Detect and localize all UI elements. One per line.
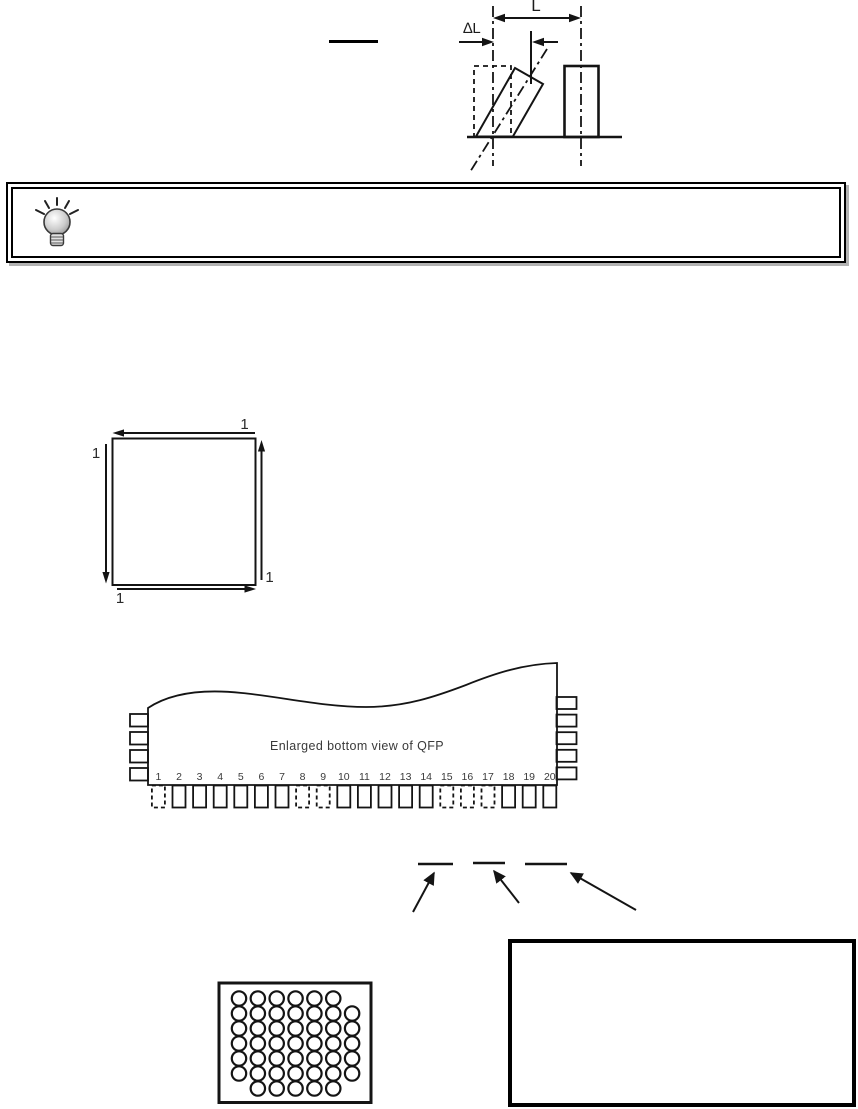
bga-ball (232, 1066, 246, 1080)
bga-ball (307, 1036, 321, 1050)
empty-note-box (508, 939, 856, 1107)
arrowhead-up-icon (258, 440, 265, 452)
lightbulb-icon (33, 195, 81, 255)
qfp-pin-number: 7 (279, 771, 285, 783)
qfp-left-pin (130, 714, 148, 727)
qfp-pin-number: 3 (197, 771, 203, 783)
dim-label-delta-L: ∆L (463, 20, 481, 37)
bga-ball (270, 1066, 284, 1080)
qfp-bottom-pin (440, 786, 453, 808)
bga-ball (307, 1051, 321, 1065)
bga-ball (326, 1051, 340, 1065)
qfp-right-pin (557, 750, 577, 762)
bga-ball (326, 991, 340, 1005)
qfp-pin-number: 6 (258, 771, 264, 783)
bga-ball (270, 1081, 284, 1095)
qfp-bottom-pin (214, 786, 227, 808)
qfp-bottom-pin (502, 786, 515, 808)
bga-ball (326, 1021, 340, 1035)
qfp-bottom-pin (276, 786, 289, 808)
bga-ball (251, 1051, 265, 1065)
arrowhead-right-icon (245, 585, 257, 592)
qfp-pin-number: 12 (379, 771, 391, 783)
corner-label-left: 1 (92, 445, 100, 462)
qfp-pin-number: 19 (523, 771, 535, 783)
bga-ball (232, 1036, 246, 1050)
bga-ball (251, 1036, 265, 1050)
tip-box (6, 182, 846, 263)
qfp-body (148, 663, 557, 785)
bga-ball (326, 1006, 340, 1020)
document-page: { "colors": { "ink": "#141414", "text": … (0, 0, 858, 1109)
bga-balls (232, 991, 359, 1095)
bga-ball (326, 1081, 340, 1095)
tilted-component (476, 68, 543, 137)
qfp-bottom-pins: 1234567891011121314151617181920 (152, 771, 556, 808)
bga-ball (345, 1036, 359, 1050)
bga-ball (288, 1006, 302, 1020)
tip-box-inner-border (11, 187, 841, 258)
qfp-right-pin (557, 767, 577, 779)
qfp-bottom-pin (523, 786, 536, 808)
qfp-right-pin (557, 715, 577, 727)
bga-ball (232, 1051, 246, 1065)
square-outline (113, 439, 256, 586)
bga-ball (345, 1051, 359, 1065)
qfp-bottom-pin (399, 786, 412, 808)
qfp-right-pin (557, 732, 577, 744)
qfp-bottom-pin (296, 786, 309, 808)
blank-word-underline (329, 40, 378, 43)
qfp-bottom-pin (152, 786, 165, 808)
arrowhead-left-icon (532, 38, 544, 46)
bga-ball (270, 1006, 284, 1020)
callout-arrow (413, 873, 434, 912)
bga-ball (270, 991, 284, 1005)
qfp-pin-number: 2 (176, 771, 182, 783)
qfp-pin-number: 13 (400, 771, 412, 783)
qfp-bottom-pin (358, 786, 371, 808)
qfp-pin-number: 18 (503, 771, 515, 783)
qfp-bottom-pin (461, 786, 474, 808)
qfp-bottom-pin (379, 786, 392, 808)
dim-label-L: L (531, 0, 540, 15)
qfp-bottom-pin (317, 786, 330, 808)
qfp-right-pin (557, 697, 577, 709)
qfp-pin-number: 20 (544, 771, 556, 783)
qfp-pin-number: 17 (482, 771, 494, 783)
bga-ball (251, 1006, 265, 1020)
qfp-pin-number: 15 (441, 771, 453, 783)
bga-ball (288, 1021, 302, 1035)
corner-label-top: 1 (240, 416, 248, 433)
bga-ball (307, 1021, 321, 1035)
qfp-bottom-pin (337, 786, 350, 808)
bga-ball (307, 1081, 321, 1095)
arrowhead-left-icon (113, 429, 125, 436)
bga-ball (251, 1081, 265, 1095)
qfp-pin-number: 4 (217, 771, 223, 783)
qfp-bottom-pin (543, 786, 556, 808)
qfp-pin-number: 10 (338, 771, 350, 783)
qfp-pin-number: 1 (155, 771, 161, 783)
arrowhead-left-icon (493, 14, 505, 22)
bga-ball (288, 1036, 302, 1050)
sequence-square-figure: 1 1 1 1 (80, 400, 280, 615)
qfp-pin-number: 16 (462, 771, 474, 783)
bga-ball (345, 1066, 359, 1080)
corner-label-bottom: 1 (116, 590, 124, 607)
qfp-bottom-pin (420, 786, 433, 808)
callout-arrow (571, 873, 636, 910)
qfp-bottom-pin (193, 786, 206, 808)
callout-figure (400, 838, 650, 923)
bga-ball (232, 1021, 246, 1035)
arrowhead-down-icon (102, 572, 109, 584)
bga-ball (251, 991, 265, 1005)
qfp-bottom-pin (173, 786, 186, 808)
bga-ball (251, 1021, 265, 1035)
qfp-left-pin (130, 732, 148, 745)
bga-ball (345, 1021, 359, 1035)
bga-figure (212, 976, 382, 1108)
qfp-pin-number: 11 (359, 771, 370, 783)
lead-deviation-figure: L ∆L (440, 0, 640, 185)
bga-ball (288, 1066, 302, 1080)
bga-ball (270, 1021, 284, 1035)
bga-ball (251, 1066, 265, 1080)
qfp-pin-number: 8 (300, 771, 306, 783)
qfp-bottom-pin (482, 786, 495, 808)
qfp-left-pin (130, 768, 148, 781)
qfp-bottom-pin (234, 786, 247, 808)
qfp-bottom-pin (255, 786, 268, 808)
qfp-left-pin (130, 750, 148, 763)
tilted-centerline (470, 49, 547, 172)
bga-ball (288, 1051, 302, 1065)
bga-ball (345, 1006, 359, 1020)
bga-ball (232, 991, 246, 1005)
bga-ball (288, 1081, 302, 1095)
bga-ball (232, 1006, 246, 1020)
bga-ball (307, 991, 321, 1005)
qfp-pin-number: 5 (238, 771, 244, 783)
callout-arrow (494, 871, 519, 903)
qfp-pin-number: 14 (420, 771, 432, 783)
bga-ball (270, 1036, 284, 1050)
bga-ball (326, 1036, 340, 1050)
corner-label-right: 1 (265, 569, 273, 586)
bga-ball (307, 1006, 321, 1020)
bga-ball (307, 1066, 321, 1080)
bga-ball (326, 1066, 340, 1080)
qfp-figure: Enlarged bottom view of QFP 123456789101… (118, 648, 596, 820)
bga-ball (270, 1051, 284, 1065)
bga-body-outline (219, 983, 371, 1103)
arrowhead-right-icon (569, 14, 581, 22)
bga-ball (288, 991, 302, 1005)
qfp-caption: Enlarged bottom view of QFP (270, 739, 444, 753)
qfp-pin-number: 9 (320, 771, 326, 783)
